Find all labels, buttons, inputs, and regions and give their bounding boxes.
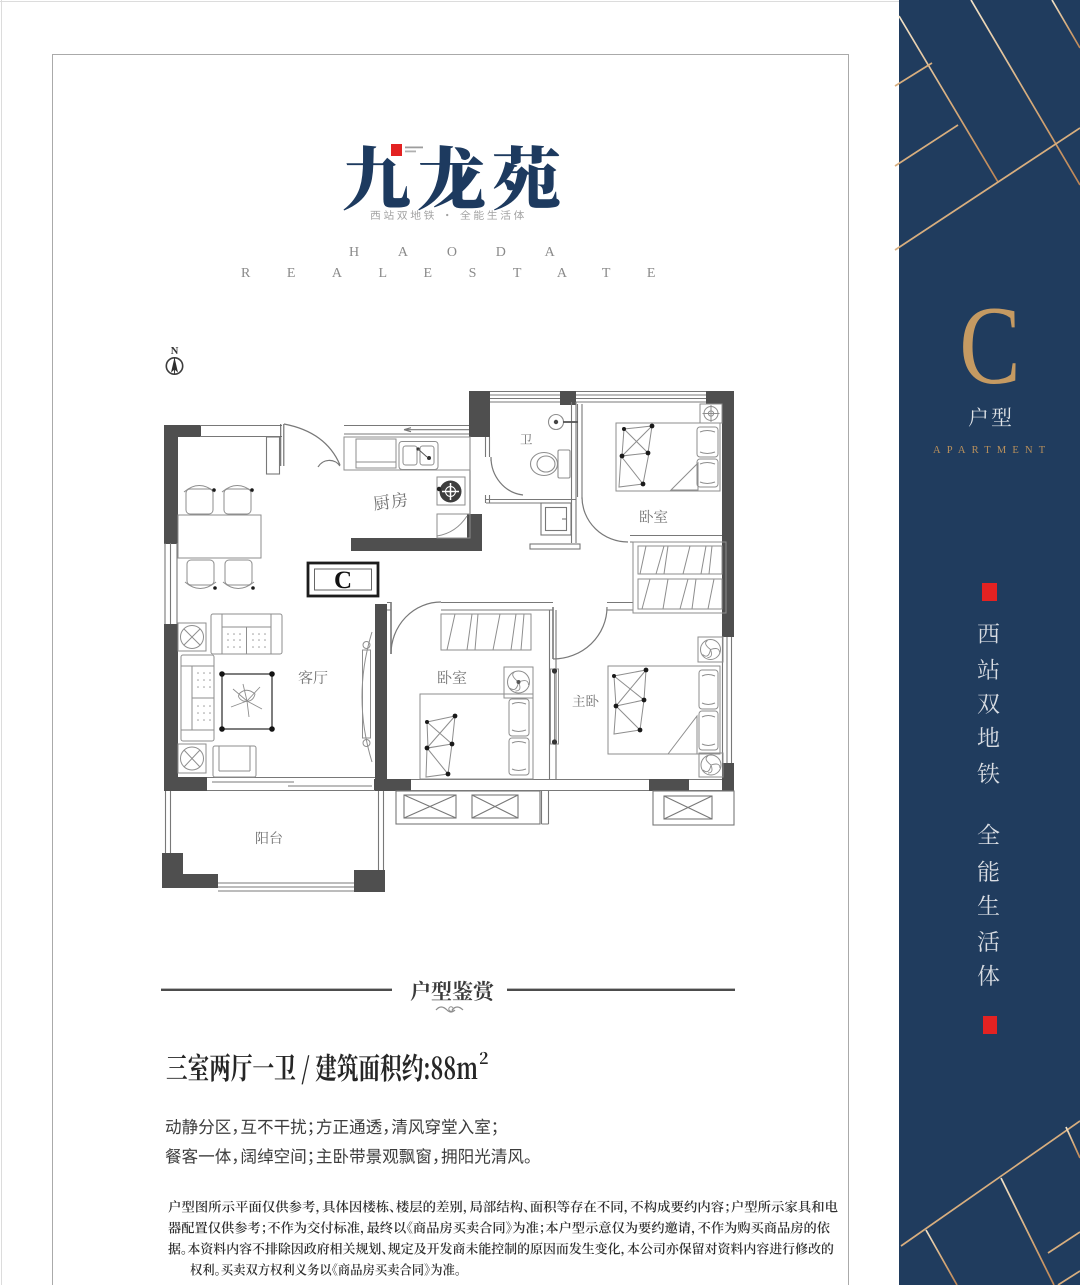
svg-text:HAODA: HAODA xyxy=(349,245,594,260)
svg-text:APARTMENT: APARTMENT xyxy=(933,445,1051,456)
svg-text:C: C xyxy=(959,285,1020,409)
svg-text:C: C xyxy=(334,567,352,594)
svg-text:N: N xyxy=(171,346,179,357)
svg-text:REALESTATE: REALESTATE xyxy=(241,266,692,281)
